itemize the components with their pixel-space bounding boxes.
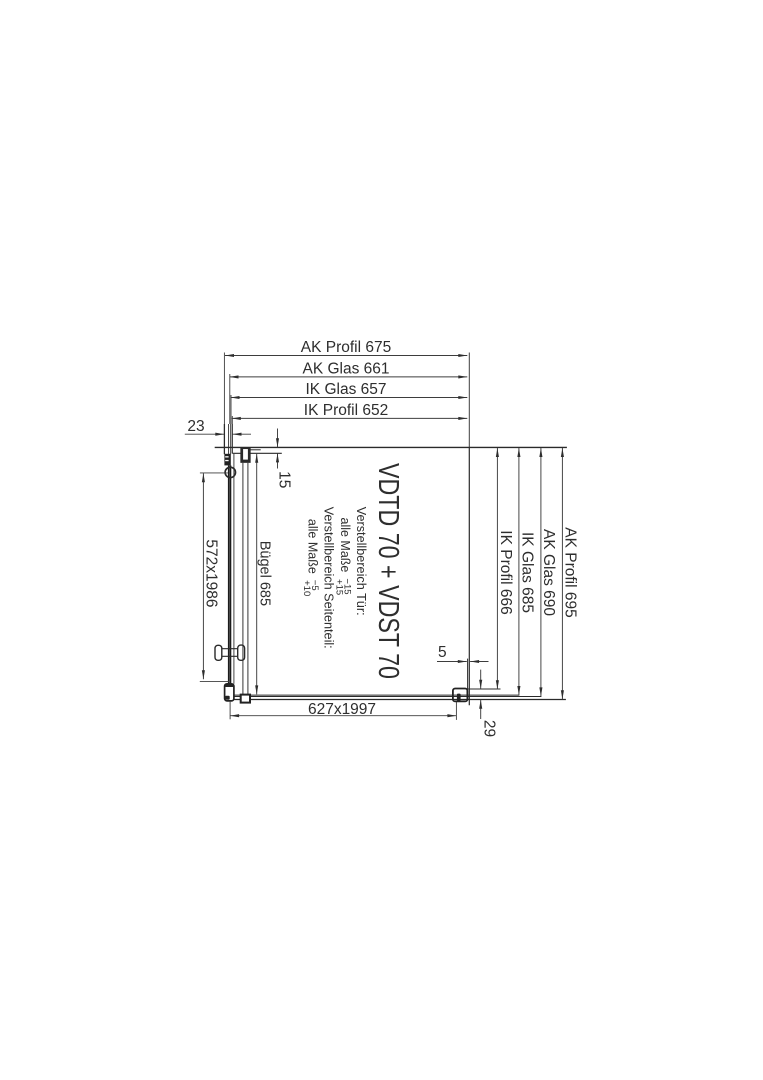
svg-text:627x1997: 627x1997 bbox=[308, 701, 376, 718]
svg-text:Bügel 685: Bügel 685 bbox=[256, 541, 272, 606]
svg-text:IK Glas 685: IK Glas 685 bbox=[518, 532, 535, 613]
svg-text:29: 29 bbox=[480, 720, 497, 737]
svg-text:Verstellbereich Tür:: Verstellbereich Tür: bbox=[354, 507, 368, 616]
svg-text:IK Profil 652: IK Profil 652 bbox=[304, 402, 388, 419]
svg-text:Verstellbereich Seitenteil:: Verstellbereich Seitenteil: bbox=[322, 507, 336, 649]
svg-text:IK Glas 657: IK Glas 657 bbox=[306, 381, 387, 398]
svg-text:5: 5 bbox=[438, 644, 447, 661]
svg-text:15: 15 bbox=[275, 471, 292, 488]
svg-text:IK Profil 666: IK Profil 666 bbox=[497, 530, 514, 614]
svg-text:AK Profil 695: AK Profil 695 bbox=[562, 527, 579, 617]
svg-text:VDTD 70 + VDST 70: VDTD 70 + VDST 70 bbox=[372, 463, 404, 679]
svg-text:AK Glas 661: AK Glas 661 bbox=[302, 360, 389, 377]
svg-text:572x1986: 572x1986 bbox=[203, 539, 220, 607]
svg-text:23: 23 bbox=[187, 418, 204, 435]
svg-text:AK Profil 675: AK Profil 675 bbox=[301, 339, 391, 356]
svg-text:AK Glas 690: AK Glas 690 bbox=[540, 529, 557, 616]
